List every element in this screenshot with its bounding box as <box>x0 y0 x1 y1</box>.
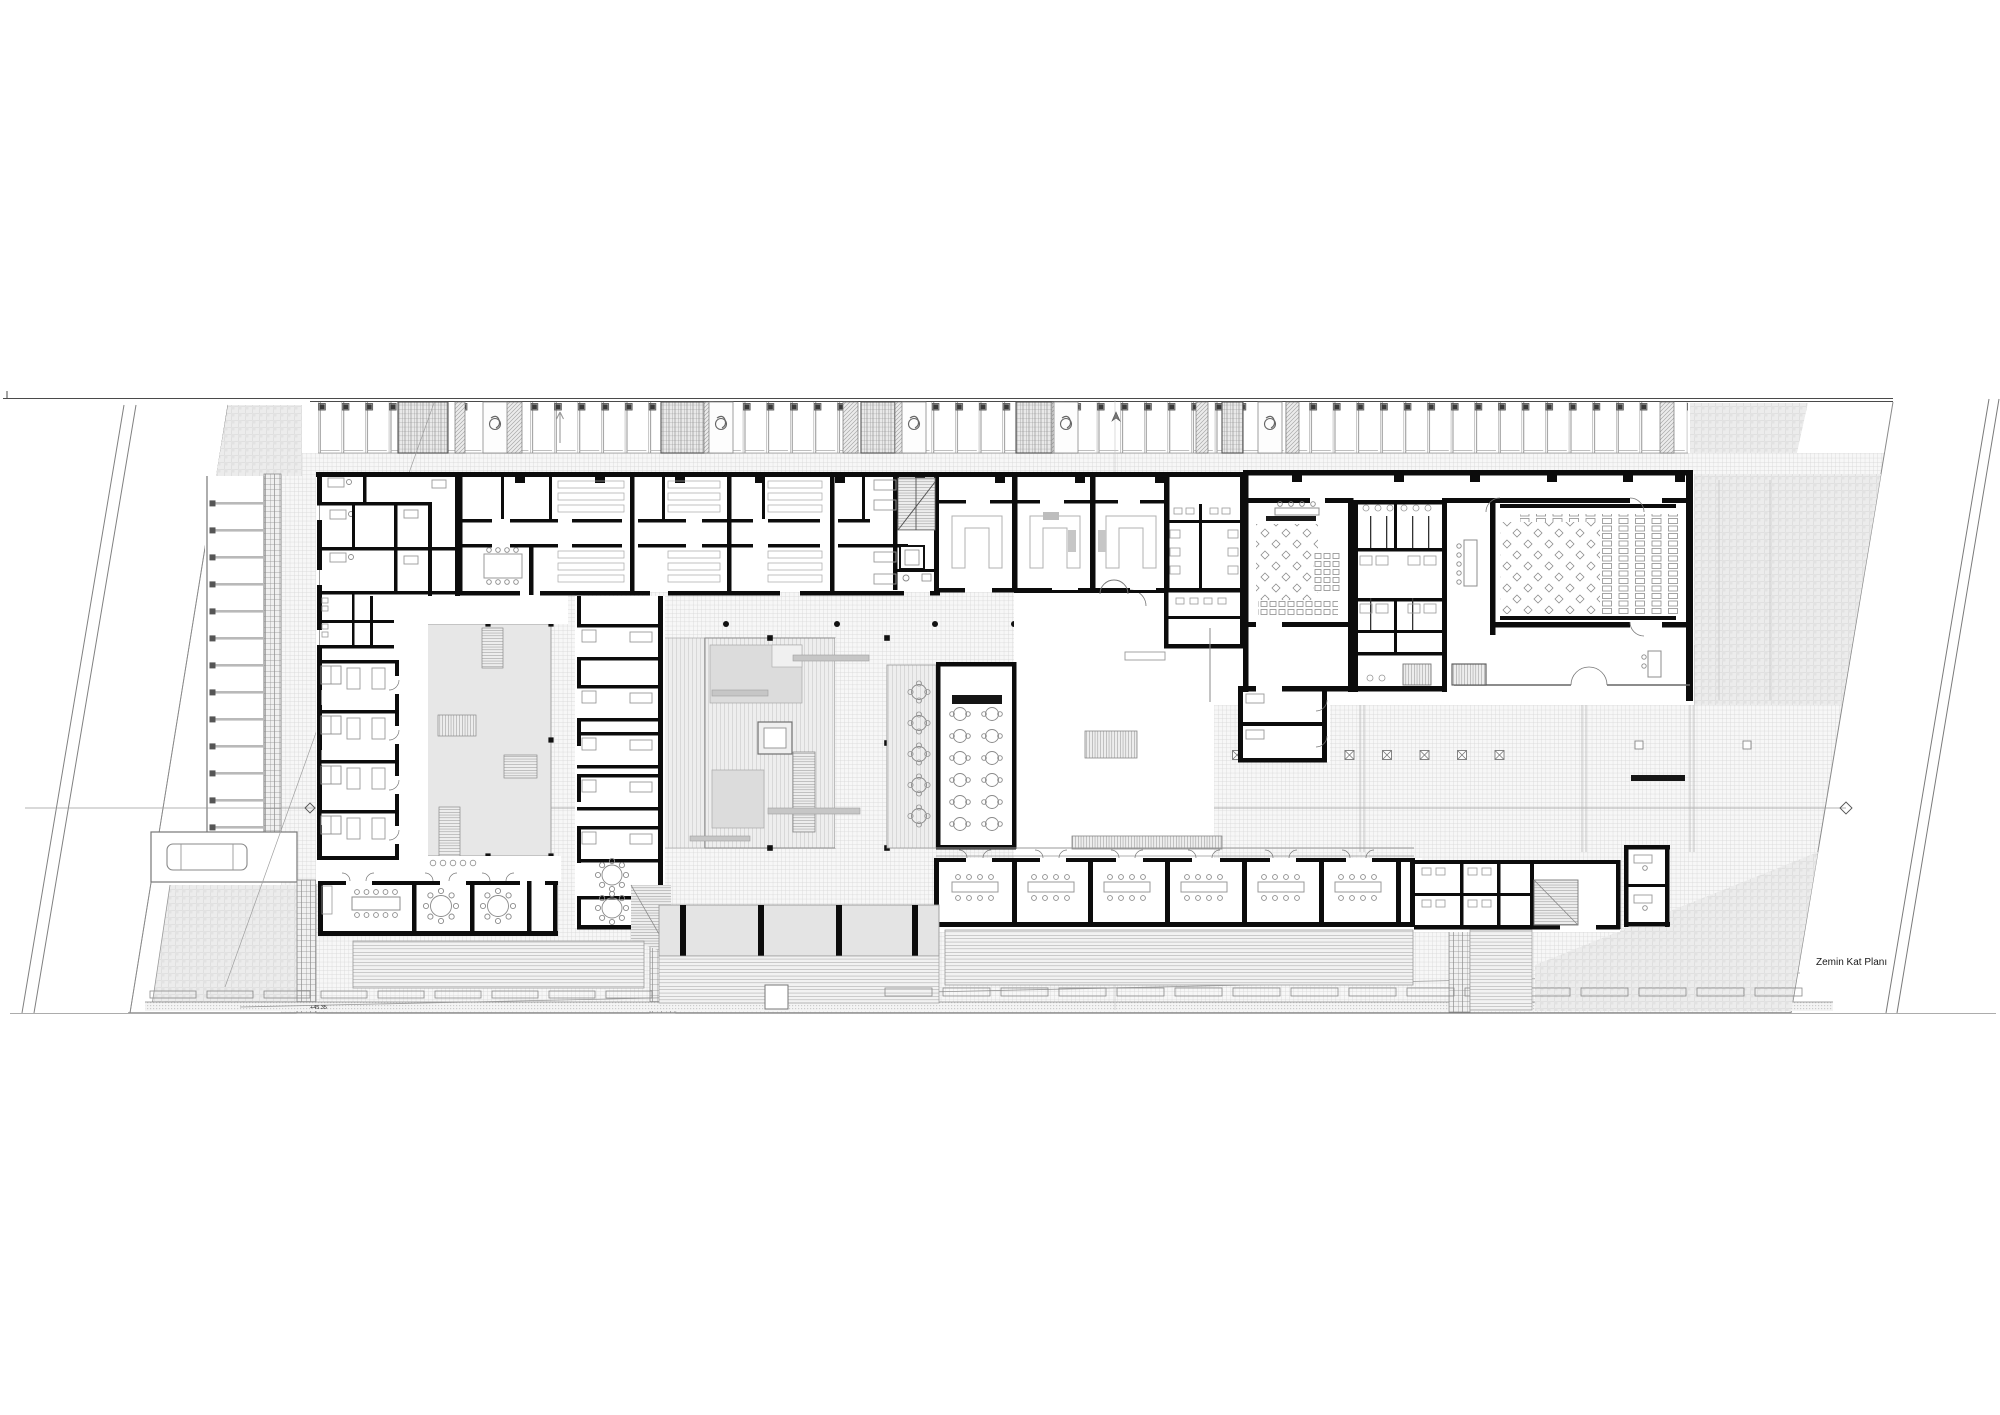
svg-text:Zemin Kat Planı: Zemin Kat Planı <box>1816 957 1887 968</box>
svg-text:+45.35: +45.35 <box>310 1005 327 1011</box>
